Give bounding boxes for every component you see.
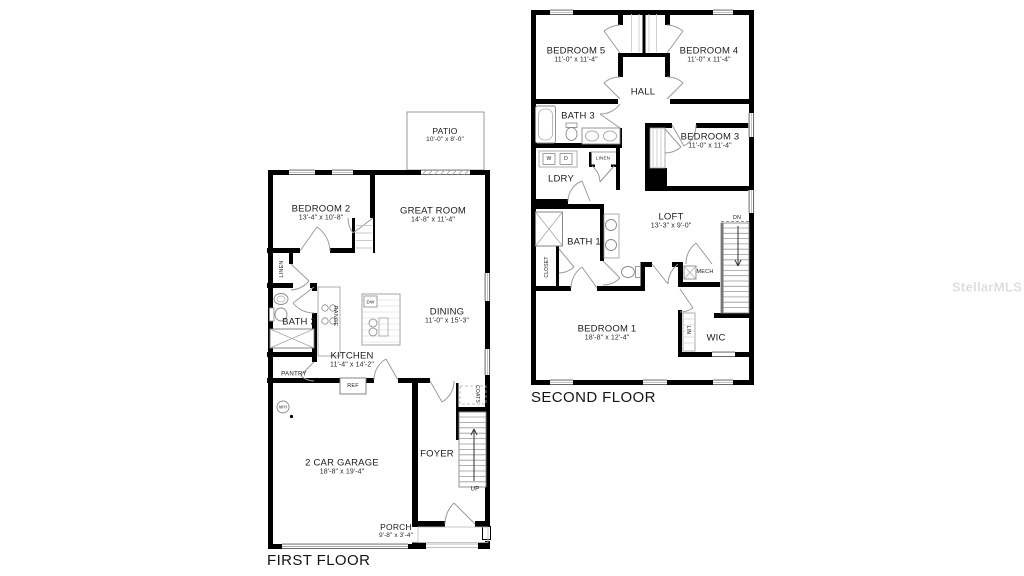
bedroom1-label: BEDROOM 118'-8" x 12'-4": [578, 323, 637, 342]
bath2-label: BATH 2: [282, 316, 316, 327]
bedroom3-label: BEDROOM 311'-0" x 11'-4": [681, 131, 740, 150]
front-door: [445, 503, 475, 524]
bath2-sink: [274, 294, 288, 305]
linen2-label: LINEN: [596, 156, 610, 161]
coats-door: [430, 381, 454, 402]
coats-shelf: [460, 386, 486, 404]
bedroom5-label: BEDROOM 511'-0" x 11'-4": [547, 45, 606, 64]
linen-door: [291, 264, 309, 290]
up-label: UP: [471, 486, 480, 493]
porch-label: PORCH9'-8" x 3'-4": [379, 522, 413, 540]
closet1-door: [559, 249, 574, 273]
garage-entry-door: [374, 359, 398, 380]
linen2-door: [592, 166, 614, 182]
bed5-door: [604, 77, 620, 99]
wic-door: [680, 289, 693, 312]
patio-label: PATIO10'-0" x 8'-0": [426, 126, 464, 144]
sf-fixtures: [536, 106, 697, 279]
second-floor-title: SECOND FLOOR: [531, 389, 656, 406]
ldry-label: LDRY: [548, 173, 574, 184]
porch-outline: [418, 527, 488, 543]
first-floor-title: FIRST FLOOR: [267, 552, 370, 569]
garage-label: 2 CAR GARAGE18'-8" x 19'-4": [305, 457, 379, 476]
bath1-toilet: [622, 267, 641, 278]
bath3-door: [600, 104, 620, 128]
great-room-label: GREAT ROOM14'-8" x 11'-4": [400, 205, 466, 224]
ff-doors: [291, 218, 475, 524]
wic-opening: [712, 351, 735, 358]
loft-label: LOFT13'-3" x 9'-0": [651, 211, 692, 230]
sliding-door: [421, 169, 470, 176]
washer-dryer: [539, 151, 577, 167]
second-floor-plan: [531, 9, 755, 386]
ref-label: REF: [347, 383, 359, 389]
foyer-label: FOYER: [420, 448, 454, 459]
bedroom4-label: BEDROOM 411'-0" x 11'-4": [680, 45, 739, 64]
bath2-shower: [270, 329, 314, 348]
sf-outer-walls: [531, 10, 754, 385]
bedroom2-door: [300, 227, 330, 251]
bath1-vanity: [604, 214, 619, 258]
dining-label: DINING11'-0" x 15'-3": [425, 306, 469, 325]
bath1-door: [571, 267, 597, 288]
range-label: RANGE: [332, 306, 338, 327]
bath3-vanity: [582, 128, 620, 144]
floor-plan-graphics: [0, 0, 1024, 576]
bedroom2-label: BEDROOM 213'-4" x 10'-8": [292, 203, 351, 222]
bath1-label: BATH 1: [567, 236, 601, 247]
bath1-shower: [536, 212, 563, 246]
watermark: StellarMLS: [952, 280, 1022, 295]
lin-label: LIN: [685, 326, 691, 334]
bed1-door: [652, 264, 678, 284]
washer-label: W: [547, 156, 552, 162]
dw-label: DW: [367, 299, 375, 304]
bath2-door: [293, 287, 314, 313]
mech-label: MECH: [697, 269, 714, 275]
first-floor-plan: [267, 112, 491, 550]
bedroom3-closet: [650, 128, 665, 168]
closet-label: CLOSET: [544, 256, 550, 277]
bed5-closet-door: [604, 25, 620, 53]
porch-edge: [412, 526, 491, 550]
ff-outer-walls: [268, 170, 490, 549]
mech-unit: [684, 266, 696, 279]
mech-door: [686, 243, 712, 264]
bed4-door: [667, 77, 683, 99]
bath3-tub: [536, 106, 556, 143]
sf-stairs: [721, 222, 749, 314]
bath3-toilet: [566, 123, 577, 141]
linen-label: LINEN: [279, 260, 285, 277]
bath3-label: BATH 3: [561, 110, 595, 121]
bed3-closet-door: [665, 129, 681, 153]
ff-stairs: [459, 412, 486, 487]
floor-plan-page: FIRST FLOOR PATIO10'-0" x 8'-0" BEDROOM …: [0, 0, 1024, 576]
garage-door: [282, 543, 408, 550]
dn-label: DN: [733, 215, 741, 221]
wic-label: WIC: [706, 332, 725, 343]
dryer-label: D: [564, 156, 568, 162]
wh-label: WH: [279, 405, 287, 410]
coats-label: COATS: [474, 385, 480, 403]
pantry-label: PANTRY: [281, 371, 307, 378]
hall-label: HALL: [631, 86, 656, 97]
kitchen-label: KITCHEN11'-4" x 14'-2": [330, 350, 374, 369]
toilet-room-door: [603, 261, 620, 285]
